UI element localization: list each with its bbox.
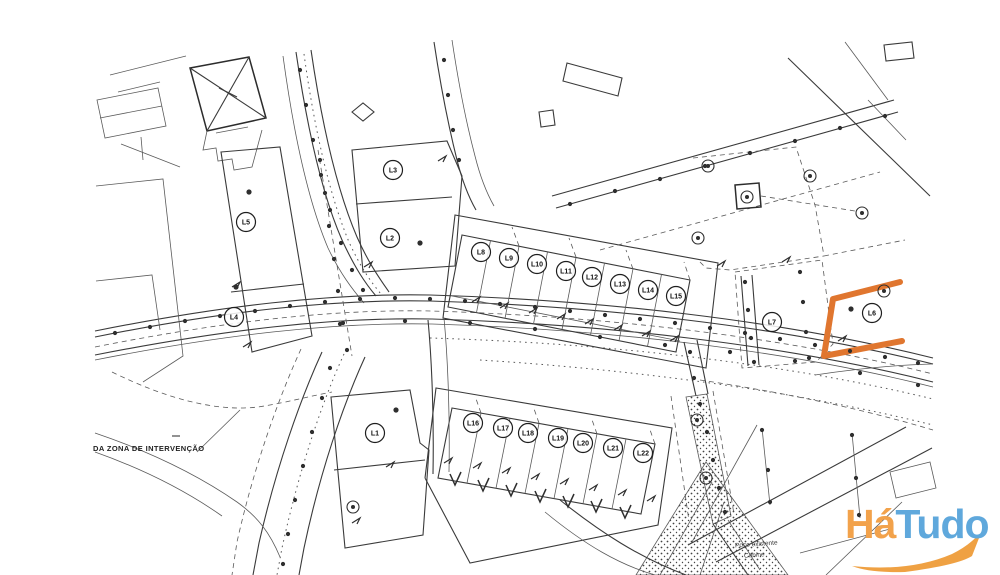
- lot-label-L11: L11: [560, 269, 572, 276]
- survey-dot: [451, 128, 455, 132]
- survey-dot: [705, 430, 709, 434]
- survey-dot: [568, 309, 572, 313]
- survey-dot: [350, 268, 354, 272]
- watermark-tudo-text: Tudo: [895, 501, 988, 547]
- survey-dot: [603, 313, 607, 317]
- survey-dot: [345, 348, 349, 352]
- survey-dot: [311, 138, 315, 142]
- survey-dot: [288, 304, 292, 308]
- survey-dot: [638, 317, 642, 321]
- survey-dot: [743, 280, 747, 284]
- survey-circle-center: [704, 476, 708, 480]
- hatudo-watermark: HáTudo: [845, 504, 989, 545]
- survey-dot: [743, 331, 747, 335]
- survey-dot: [854, 476, 858, 480]
- corner-tick: [364, 262, 372, 268]
- lot-label-L22: L22: [637, 451, 649, 458]
- survey-dot: [428, 297, 432, 301]
- survey-dot: [663, 343, 667, 347]
- survey-circle-center: [696, 236, 700, 240]
- survey-dot: [883, 355, 887, 359]
- survey-dot: [319, 173, 323, 177]
- corner-tick: [560, 479, 568, 485]
- survey-dot: [328, 208, 332, 212]
- survey-dot: [318, 158, 322, 162]
- survey-dot: [858, 371, 862, 375]
- survey-dot: [749, 336, 753, 340]
- lot-label-L12: L12: [586, 275, 598, 282]
- zone-annotation: DA ZONA DE INTERVENÇÃO: [93, 444, 204, 453]
- point-marker: [417, 240, 422, 245]
- survey-dot: [746, 308, 750, 312]
- survey-dot: [708, 326, 712, 330]
- survey-dot: [760, 428, 764, 432]
- survey-dot: [692, 376, 696, 380]
- survey-circle-center: [808, 174, 812, 178]
- lot-label-L9: L9: [505, 256, 513, 263]
- survey-circle-center: [860, 211, 864, 215]
- lot-label-L21: L21: [607, 446, 619, 453]
- markers-layer: L1L2L3L4L5L6L7L8L9L10L11L12L13L14L15L16L…: [113, 58, 920, 566]
- lot-label-L17: L17: [497, 426, 509, 433]
- corner-tick: [531, 474, 539, 480]
- survey-circle-center: [882, 289, 886, 293]
- check-mark: [478, 478, 489, 491]
- corner-tick: [473, 463, 481, 469]
- survey-dot: [807, 356, 811, 360]
- survey-dot: [328, 366, 332, 370]
- lot-label-L5: L5: [242, 220, 250, 227]
- survey-dot: [183, 319, 187, 323]
- survey-dot: [286, 532, 290, 536]
- survey-dot: [717, 486, 721, 490]
- survey-dot: [393, 296, 397, 300]
- survey-dot: [148, 325, 152, 329]
- survey-dot: [339, 241, 343, 245]
- survey-dot: [336, 289, 340, 293]
- survey-dot: [533, 327, 537, 331]
- lot-label-L15: L15: [670, 294, 682, 301]
- lower-terrace-band: [425, 388, 672, 563]
- survey-dot: [310, 430, 314, 434]
- block-l5-l4: [221, 147, 352, 356]
- survey-dot: [468, 321, 472, 325]
- lot-label-L6: L6: [868, 311, 876, 318]
- survey-dot: [253, 309, 257, 313]
- survey-dot: [113, 331, 117, 335]
- survey-dot: [568, 202, 572, 206]
- corner-tick: [502, 468, 510, 474]
- watermark-ha-text: Há: [845, 501, 895, 547]
- corner-tick: [647, 496, 655, 502]
- site-plan-drawing: L1L2L3L4L5L6L7L8L9L10L11L12L13L14L15L16L…: [0, 0, 1000, 575]
- check-mark: [506, 483, 517, 496]
- survey-dot: [766, 468, 770, 472]
- survey-dot: [748, 151, 752, 155]
- block-l3-l2: [352, 141, 462, 272]
- block-l1: [331, 318, 449, 548]
- site-plan-page: L1L2L3L4L5L6L7L8L9L10L11L12L13L14L15L16L…: [0, 0, 1000, 575]
- survey-dot: [793, 139, 797, 143]
- survey-dot: [301, 464, 305, 468]
- survey-dot: [598, 335, 602, 339]
- survey-dot: [323, 191, 327, 195]
- lot-label-L16: L16: [467, 421, 479, 428]
- survey-dot: [658, 177, 662, 181]
- survey-dot: [883, 114, 887, 118]
- survey-dot: [332, 257, 336, 261]
- point-marker: [393, 407, 398, 412]
- survey-dot: [673, 321, 677, 325]
- point-marker: [848, 306, 853, 311]
- corner-tick: [838, 336, 846, 342]
- survey-dot: [323, 300, 327, 304]
- survey-dot: [446, 93, 450, 97]
- survey-dot: [752, 360, 756, 364]
- survey-dot: [916, 383, 920, 387]
- survey-dot: [341, 321, 345, 325]
- southwest-road: [95, 349, 365, 575]
- survey-dot: [778, 337, 782, 341]
- survey-dot: [916, 361, 920, 365]
- survey-dot: [304, 103, 308, 107]
- survey-dot: [698, 402, 702, 406]
- survey-dot: [728, 350, 732, 354]
- survey-dot: [723, 510, 727, 514]
- survey-dot: [403, 319, 407, 323]
- survey-dot: [711, 458, 715, 462]
- corner-tick: [438, 156, 446, 162]
- survey-dot: [688, 350, 692, 354]
- lot-label-L7: L7: [768, 320, 776, 327]
- lot-label-L20: L20: [577, 441, 589, 448]
- survey-dot: [813, 343, 817, 347]
- corner-tick: [352, 518, 360, 524]
- check-mark: [450, 472, 461, 485]
- survey-dot: [498, 302, 502, 306]
- survey-dot: [801, 300, 805, 304]
- check-mark: [535, 489, 546, 502]
- survey-dot: [327, 224, 331, 228]
- point-marker: [246, 189, 251, 194]
- corner-tick: [444, 458, 452, 464]
- highlight-lot-outline: [824, 282, 902, 356]
- survey-dot: [798, 270, 802, 274]
- lot-label-L18: L18: [522, 431, 534, 438]
- lot-label-L1: L1: [371, 431, 379, 438]
- lot-label-L4: L4: [230, 315, 238, 322]
- corner-tick: [589, 485, 597, 491]
- survey-circle-center: [351, 505, 355, 509]
- lot-label-L8: L8: [477, 250, 485, 257]
- lot-label-L10: L10: [531, 262, 543, 269]
- lot-label-L2: L2: [386, 236, 394, 243]
- corner-tick: [782, 257, 790, 263]
- survey-dot: [361, 288, 365, 292]
- northeast-diagonal: [539, 42, 930, 250]
- survey-dot: [848, 349, 852, 353]
- survey-dot: [793, 359, 797, 363]
- survey-dot: [320, 396, 324, 400]
- survey-circle-center: [695, 418, 699, 422]
- survey-dot: [768, 500, 772, 504]
- survey-dot: [457, 158, 461, 162]
- survey-dot: [298, 68, 302, 72]
- hip-roof-building: [190, 57, 266, 170]
- lot-label-L14: L14: [642, 288, 654, 295]
- corner-tick: [618, 490, 626, 496]
- survey-dot: [850, 433, 854, 437]
- corner-tick: [243, 342, 251, 348]
- survey-circle-center: [706, 164, 710, 168]
- survey-dot: [442, 58, 446, 62]
- lot-label-L13: L13: [614, 282, 626, 289]
- survey-dot: [613, 189, 617, 193]
- check-mark: [563, 494, 574, 507]
- survey-dot: [281, 562, 285, 566]
- survey-dot: [838, 126, 842, 130]
- lot-label-L3: L3: [389, 168, 397, 175]
- survey-dot: [804, 330, 808, 334]
- survey-dot: [463, 299, 467, 303]
- check-mark: [591, 499, 602, 512]
- survey-dot: [293, 498, 297, 502]
- corner-tick: [386, 462, 394, 468]
- cabin-annotation: Cabine: [744, 551, 765, 559]
- survey-circle-center: [745, 195, 749, 199]
- survey-dot: [358, 297, 362, 301]
- lot-label-L19: L19: [552, 436, 564, 443]
- survey-dot: [218, 314, 222, 318]
